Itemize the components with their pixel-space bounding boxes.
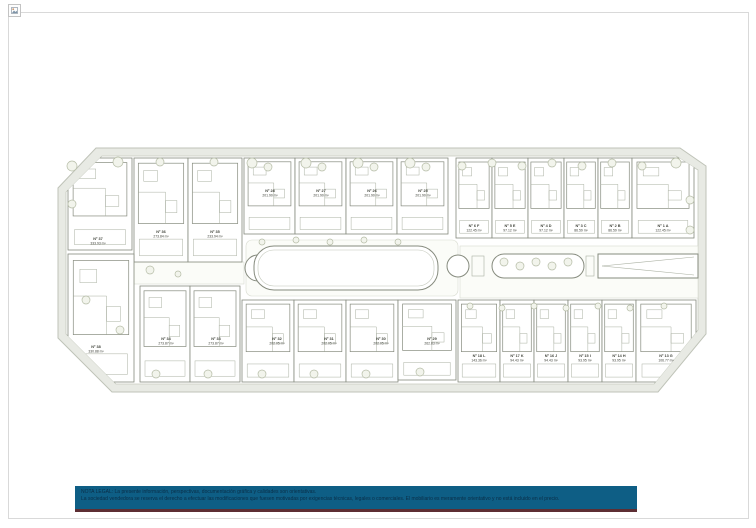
tree-icon (467, 303, 473, 309)
tree-icon (564, 258, 572, 266)
tree-icon (152, 370, 160, 378)
unit-plot (346, 300, 398, 382)
tree-icon (661, 303, 667, 309)
tree-icon (686, 196, 694, 204)
unit-label: Nº 15 I93.95 m² (578, 354, 592, 362)
tree-icon (68, 200, 76, 208)
tree-icon (67, 161, 77, 171)
tree-icon (416, 368, 424, 376)
unit-plot (534, 300, 568, 382)
tree-icon (156, 158, 164, 166)
tree-icon (686, 226, 694, 234)
tree-icon (318, 163, 326, 171)
tree-icon (563, 305, 569, 311)
lap-pool (598, 254, 698, 278)
unit-label: Nº 3 C86.59 m² (574, 224, 588, 232)
unit-label: Nº 2 B86.59 m² (608, 224, 622, 232)
tree-icon (671, 158, 681, 168)
unit-plot (602, 300, 636, 382)
tree-icon (500, 258, 508, 266)
tree-icon (488, 159, 496, 167)
tree-icon (405, 158, 415, 168)
tree-icon (532, 258, 540, 266)
tree-icon (578, 162, 586, 170)
amenity-circle (447, 255, 469, 277)
unit-label: Nº 17 K94.43 m² (510, 354, 524, 362)
tree-icon (361, 237, 367, 243)
unit-label: Nº 5 E97.12 m² (503, 224, 517, 232)
site-plan: Nº 37333.93 m²Nº 36273.84 m²Nº 35233.94 … (0, 0, 756, 528)
tree-icon (499, 305, 505, 311)
tree-icon (175, 271, 181, 277)
pool-area (245, 246, 438, 290)
tree-icon (627, 305, 633, 311)
unit-label: Nº 18 L143.36 m² (471, 354, 487, 362)
legal-note: NOTA LEGAL: La presente información, per… (75, 486, 637, 509)
tree-icon (146, 266, 154, 274)
unit-plot (134, 158, 188, 262)
tree-icon (82, 296, 90, 304)
tree-icon (518, 162, 526, 170)
unit-plot (140, 286, 190, 382)
tree-icon (247, 158, 257, 168)
tree-icon (301, 158, 311, 168)
tree-icon (548, 262, 556, 270)
tree-icon (422, 163, 430, 171)
unit-label: Nº 4 D97.12 m² (539, 224, 553, 232)
tree-icon (531, 303, 537, 309)
main-pool (254, 246, 438, 290)
tree-icon (293, 237, 299, 243)
unit-plot (242, 300, 294, 382)
tree-icon (327, 239, 333, 245)
tree-icon (264, 163, 272, 171)
tree-icon (113, 157, 123, 167)
tree-icon (210, 158, 218, 166)
legal-accent-bar (75, 509, 637, 512)
unit-plot (458, 300, 500, 382)
unit-label: Nº 16 J94.43 m² (544, 354, 558, 362)
tree-icon (204, 370, 212, 378)
unit-plot (190, 286, 240, 382)
legal-note-line1: NOTA LEGAL: La presente información, per… (81, 489, 637, 496)
legal-note-line2: La sociedad vendedora se reserva el dere… (81, 496, 637, 503)
unit-plot (188, 158, 242, 262)
tree-icon (548, 159, 556, 167)
unit-label: Nº 14 H93.95 m² (612, 354, 626, 362)
tree-icon (259, 239, 265, 245)
tree-icon (362, 370, 370, 378)
tree-icon (370, 163, 378, 171)
tree-icon (310, 370, 318, 378)
tree-icon (258, 370, 266, 378)
unit-label: Nº 13 G106.77 m² (658, 354, 674, 362)
unit-plot (568, 300, 602, 382)
pergola-strip (492, 254, 584, 278)
tree-icon (638, 162, 646, 170)
unit-plot (68, 254, 134, 382)
tree-icon (595, 303, 601, 309)
tree-icon (608, 159, 616, 167)
tree-icon (395, 239, 401, 245)
unit-plot (500, 300, 534, 382)
tree-icon (353, 158, 363, 168)
tree-icon (116, 326, 124, 334)
tree-icon (516, 262, 524, 270)
tree-icon (458, 162, 466, 170)
unit-plot (294, 300, 346, 382)
